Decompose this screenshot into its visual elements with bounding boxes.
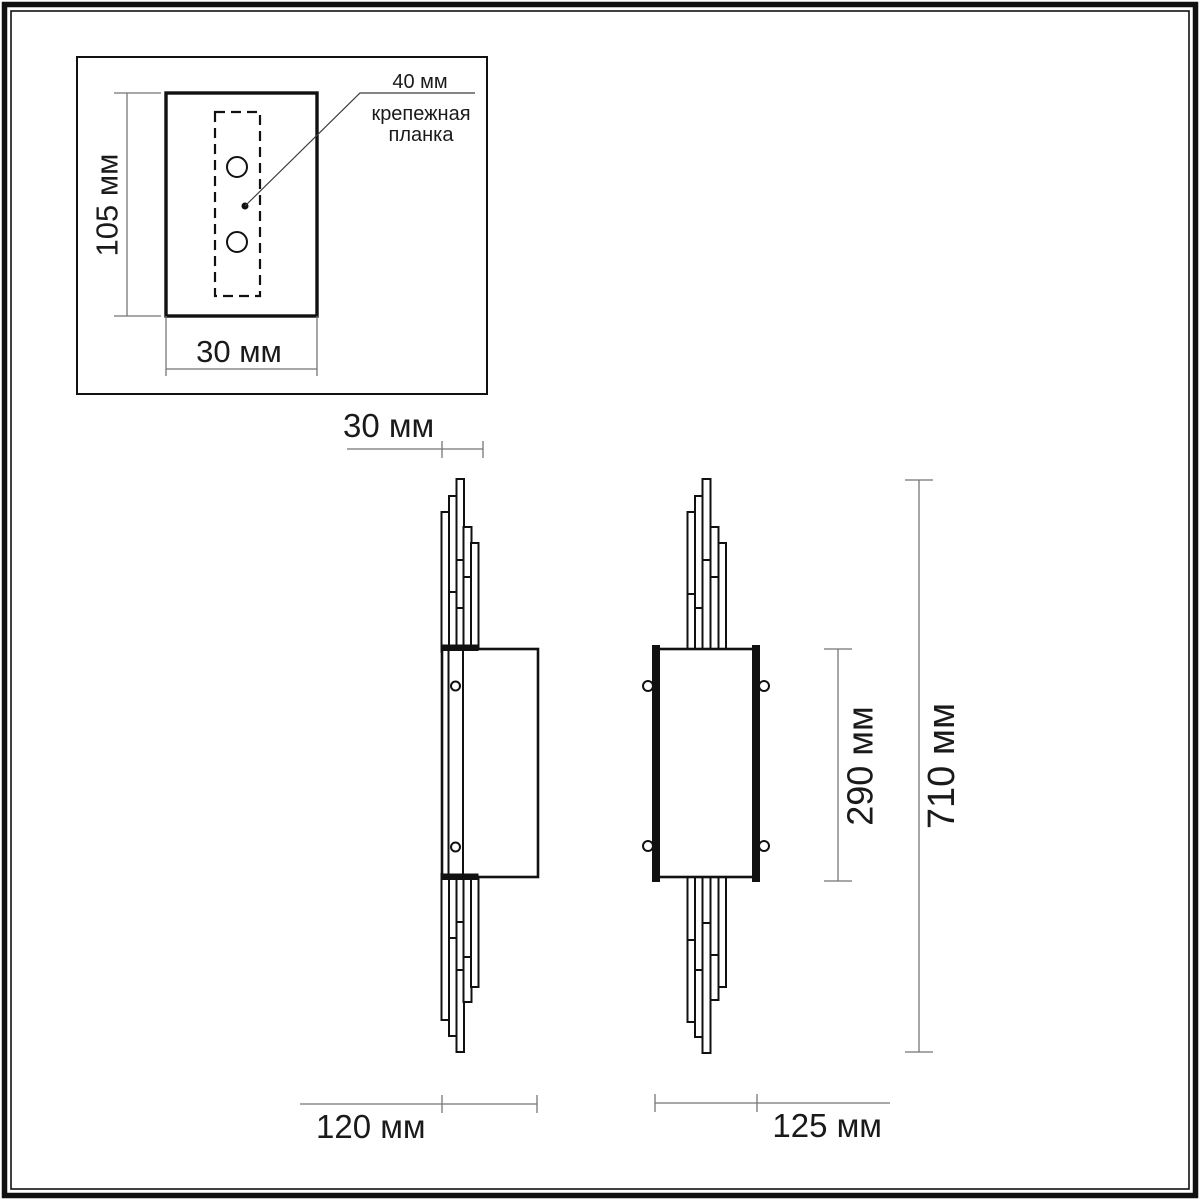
front-bottom-slat [719,874,727,987]
sconce-front-view [643,479,769,1053]
side-screw-bottom [451,843,460,852]
screw-hole-bottom [227,232,247,252]
sconce-side-view [441,479,538,1052]
wall-sconce-dimension-drawing: 105 мм 30 мм 40 мм крепежная планка 30 м… [0,0,1200,1200]
front-top-slat [703,479,711,652]
front-view-body [656,649,756,877]
side-top-slat [471,543,479,652]
front-knob-bottom-right [759,841,769,851]
inset-width-dimension: 30 мм [166,316,317,376]
front-bottom-slat [703,874,711,1053]
front-side-rail-right [752,645,760,882]
front-top-slat [711,527,719,652]
front-knob-top-right [759,681,769,691]
total-height-label: 710 мм [921,703,963,829]
side-width-dimension: 120 мм [300,1095,537,1145]
side-screw-top [451,682,460,691]
bracket-callout: 40 мм крепежная планка [371,71,470,146]
bracket-caption-line-1: крепежная [371,103,470,125]
front-knob-top-left [643,681,653,691]
side-cap-bottom [441,874,479,881]
shade-height-label: 290 мм [840,706,881,826]
inset-height-dimension: 105 мм [90,93,162,316]
front-top-slat [719,543,727,652]
front-top-slat [695,496,703,652]
inset-width-label: 30 мм [196,334,282,369]
front-bottom-slat [688,874,696,1022]
depth-dimension: 30 мм [343,407,483,458]
side-cap-top [441,645,479,652]
front-width-dimension: 125 мм [655,1094,890,1144]
side-bottom-slat [471,874,479,987]
side-width-label: 120 мм [316,1108,426,1145]
total-height-dimension: 710 мм [905,480,963,1052]
front-knob-bottom-left [643,841,653,851]
mounting-plate-detail: 105 мм 30 мм 40 мм крепежная планка [77,57,487,394]
mounting-plate-outline [166,93,317,316]
technical-drawing-page: 105 мм 30 мм 40 мм крепежная планка 30 м… [0,0,1200,1200]
bracket-caption-line-2: планка [389,124,455,146]
bracket-width-label: 40 мм [392,71,447,93]
front-width-label: 125 мм [772,1107,882,1144]
depth-label: 30 мм [343,407,434,444]
shade-height-dimension: 290 мм [824,649,881,881]
inset-height-label: 105 мм [90,154,125,257]
front-side-rail-left [652,645,660,882]
front-bottom-slat [695,874,703,1037]
side-bottom-slat [442,874,450,1020]
screw-hole-top [227,157,247,177]
front-top-slat [688,512,696,652]
front-bottom-slat [711,874,719,1000]
side-top-slat [442,512,450,652]
